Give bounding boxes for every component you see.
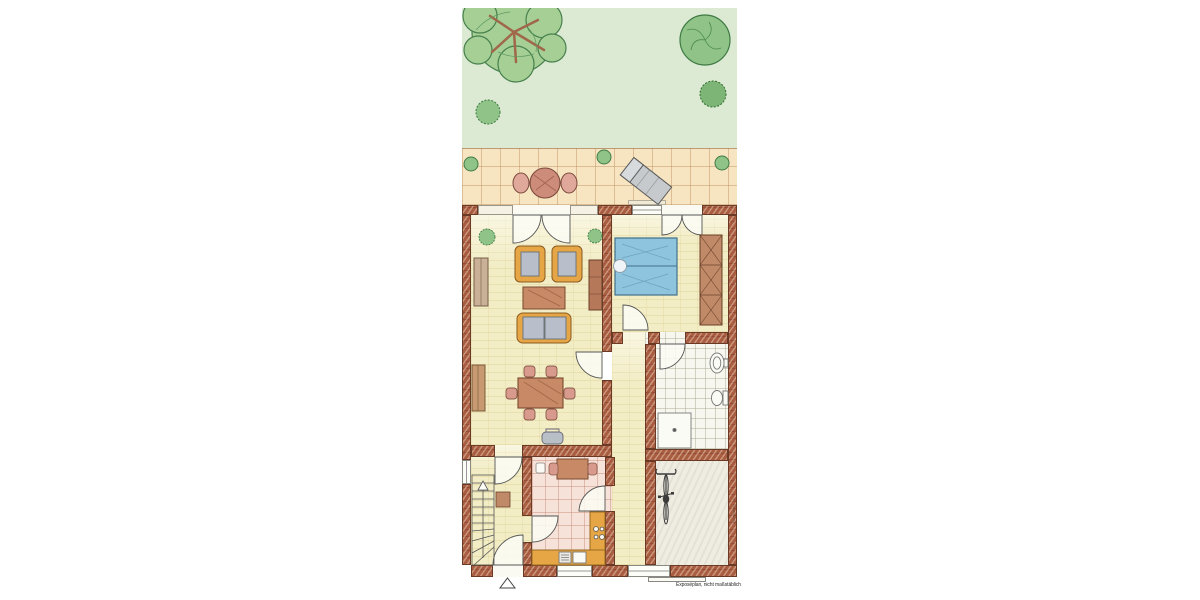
wall <box>702 205 737 215</box>
terrace-door-opening <box>662 205 702 215</box>
bedroom-floor <box>612 215 728 332</box>
wall <box>522 445 612 457</box>
wall <box>522 457 532 516</box>
bathroom-floor <box>645 332 728 449</box>
bedroom-window <box>632 205 662 215</box>
living-dining-room-floor <box>471 215 602 445</box>
wall <box>645 461 656 565</box>
french-door-opening <box>513 205 570 215</box>
wall <box>685 332 728 344</box>
entrance-door-opening <box>493 565 523 577</box>
wall <box>648 332 660 344</box>
wall <box>523 565 557 577</box>
wall <box>478 205 513 215</box>
stair-hall-window <box>462 460 471 484</box>
entrance-marker-icon <box>500 578 515 588</box>
wall <box>471 565 493 577</box>
wall <box>645 449 728 461</box>
wall <box>598 205 632 215</box>
wall <box>612 332 623 344</box>
floor-plan: © Grundriss <box>462 8 737 590</box>
terrace-area <box>462 148 737 205</box>
wall <box>605 457 615 486</box>
storage-room-floor <box>645 449 728 565</box>
wall <box>471 445 495 457</box>
wall <box>522 542 532 565</box>
garden-area <box>462 8 737 148</box>
wall <box>645 344 656 449</box>
copyright-watermark: © Grundriss <box>728 473 737 548</box>
wall <box>602 380 612 445</box>
kitchen-floor <box>532 457 612 565</box>
wall <box>570 205 598 215</box>
kitchen-window <box>557 565 592 577</box>
storage-window <box>628 565 670 577</box>
wall <box>462 484 471 565</box>
plan-disclaimer: Exposéplan, nicht maßstäblich <box>676 582 741 588</box>
wall <box>462 215 471 460</box>
wall <box>462 205 478 215</box>
hallway-floor <box>612 332 645 565</box>
wall <box>605 511 615 565</box>
wall <box>670 565 737 577</box>
wall <box>592 565 628 577</box>
wall <box>602 215 612 352</box>
